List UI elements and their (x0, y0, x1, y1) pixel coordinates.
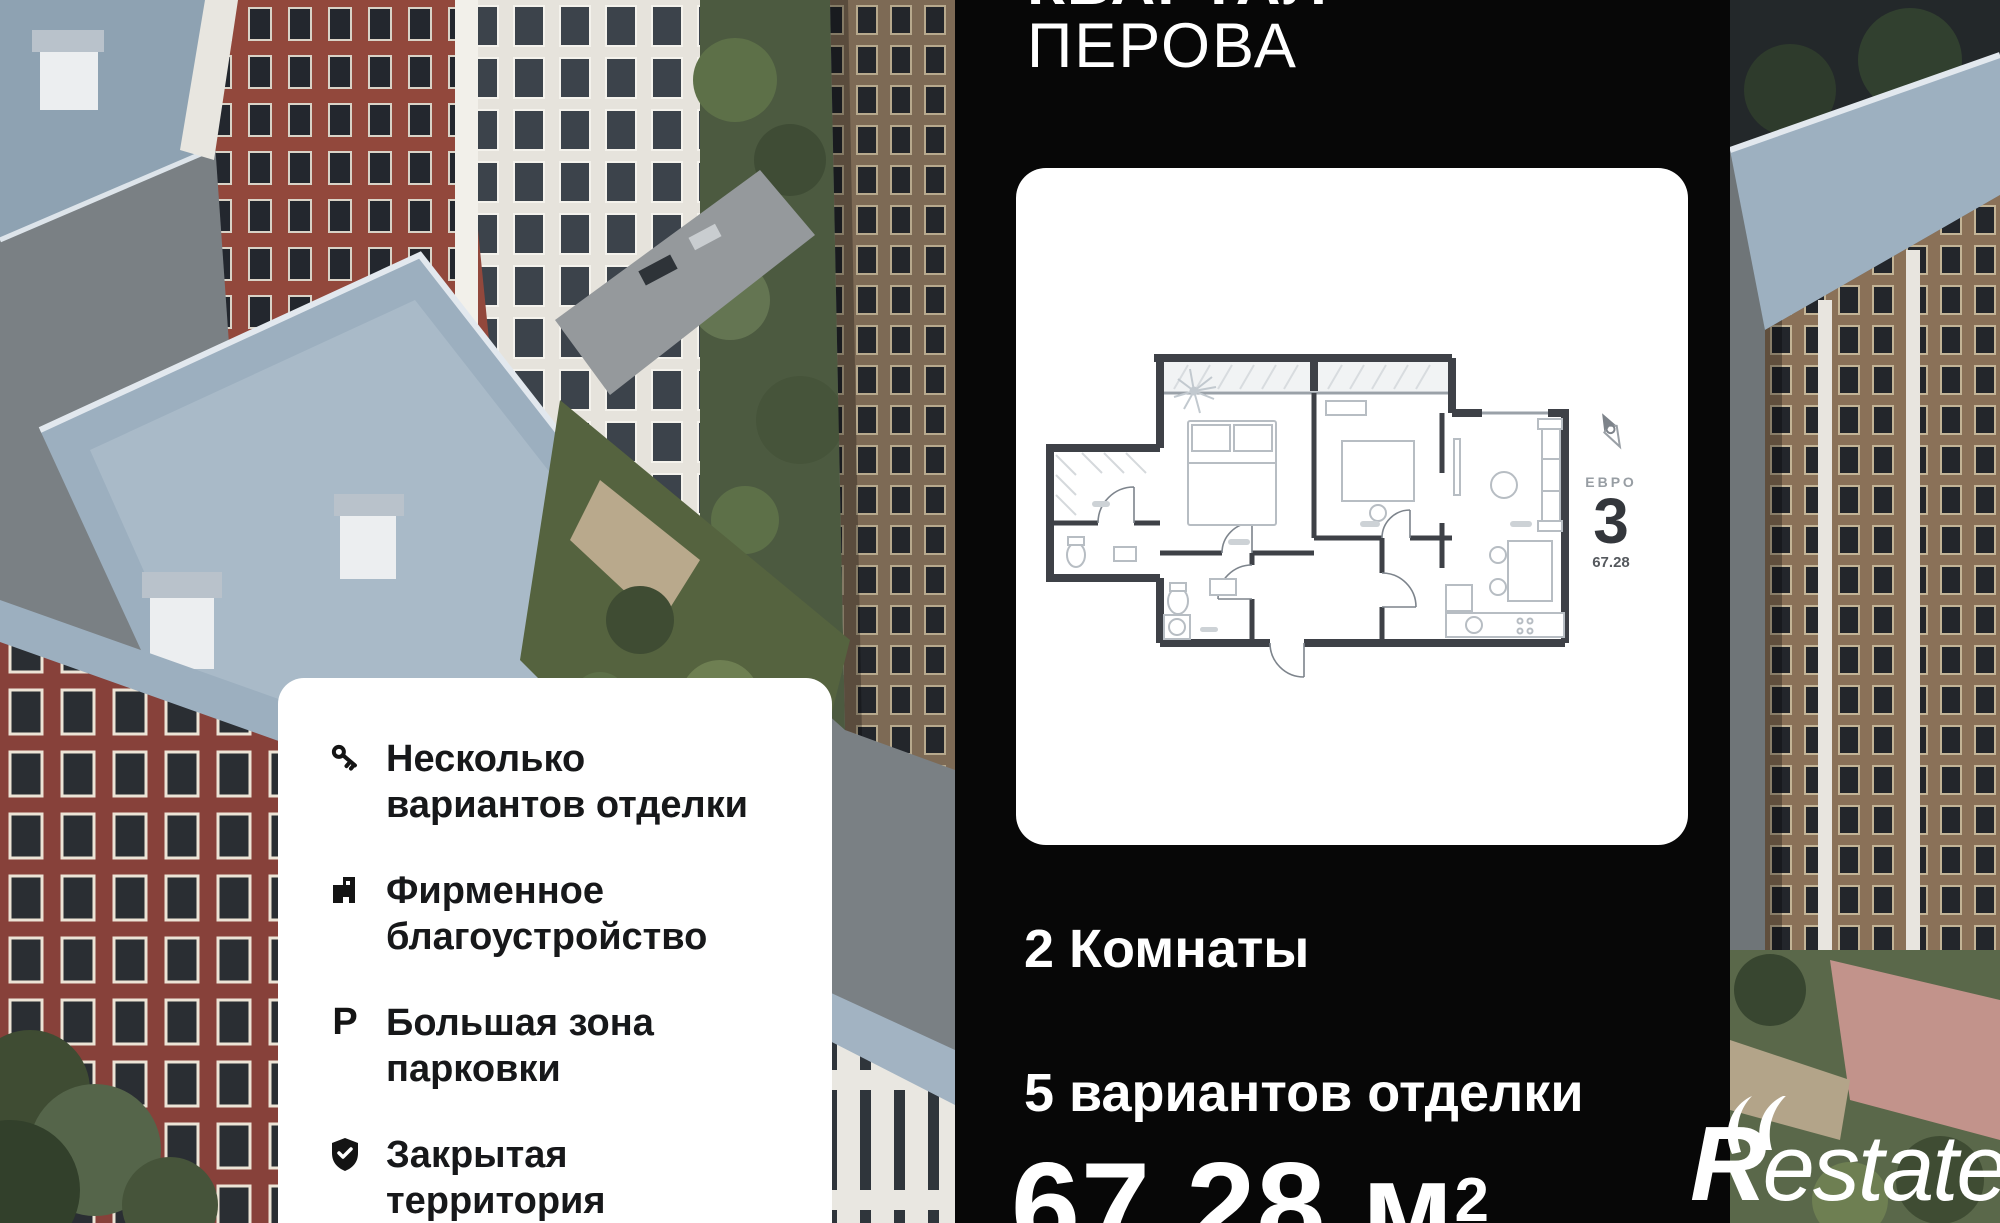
info-panel: КВАРТАЛ ПЕРОВА (955, 0, 1730, 1223)
restate-logo: R estate (1690, 1108, 2000, 1223)
feature-item-closed-territory: Закрытая территория (324, 1132, 792, 1223)
floorplan-card: ЕВРО 3 67.28 (1016, 168, 1688, 845)
feature-item-finishes: Несколько вариантов отделки (324, 736, 792, 828)
plan-rooms-number: 3 (1556, 490, 1666, 552)
feature-item-parking: P Большая зона парковки (324, 1000, 792, 1092)
finish-options-text: 5 вариантов отделки (1024, 1062, 1584, 1124)
area-superscript: 2 (1455, 1166, 1490, 1223)
floorplan-drawing (1042, 343, 1602, 703)
feature-line: Закрытая (386, 1132, 606, 1178)
area-value: 67.28 (1011, 1138, 1326, 1223)
feature-line: Несколько (386, 736, 748, 782)
logo-letter-r: R (1690, 1114, 1767, 1214)
feature-line: вариантов отделки (386, 782, 748, 828)
area-unit: м (1362, 1138, 1455, 1223)
building-icon (324, 868, 366, 960)
feature-line: территория (386, 1178, 606, 1223)
rooms-count-text: 2 Комнаты (1024, 918, 1309, 980)
aerial-render-right (1730, 0, 2000, 1223)
features-card: Несколько вариантов отделки Фирменное бл… (278, 678, 832, 1223)
feature-item-landscaping: Фирменное благоустройство (324, 868, 792, 960)
parking-letter: P (332, 1004, 357, 1040)
feature-line: Фирменное (386, 868, 707, 914)
parking-icon: P (324, 1000, 366, 1092)
shield-check-icon (324, 1132, 366, 1223)
feature-line: Большая зона (386, 1000, 654, 1046)
plan-area-label: 67.28 (1556, 554, 1666, 571)
compass-icon (1591, 408, 1631, 452)
feature-line: парковки (386, 1046, 654, 1092)
feature-line: благоустройство (386, 914, 707, 960)
plan-info-column: ЕВРО 3 67.28 (1556, 408, 1666, 571)
logo-text-rest: estate (1763, 1118, 2000, 1218)
area-text: 67.28 м2 (1011, 1136, 1490, 1223)
complex-name-line2: ПЕРОВА (1027, 14, 1298, 78)
screenshot-root: КВАРТАЛ ПЕРОВА (0, 0, 2000, 1223)
key-icon (324, 736, 366, 828)
